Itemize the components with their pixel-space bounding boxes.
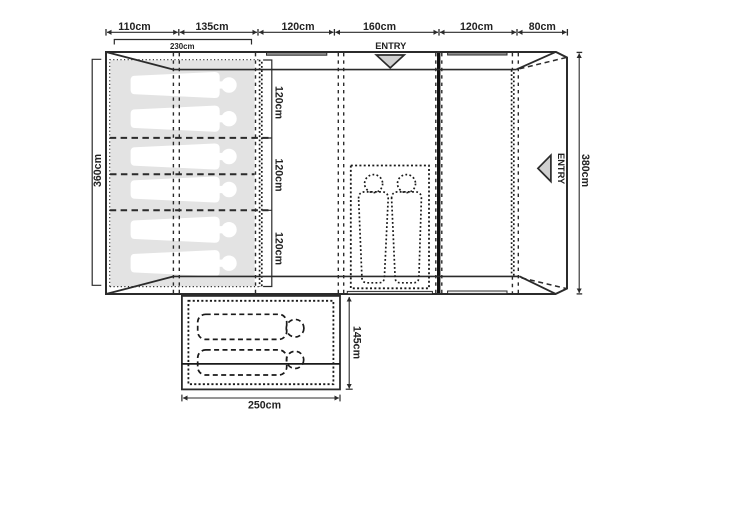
svg-text:145cm: 145cm: [350, 326, 362, 359]
svg-text:120cm: 120cm: [460, 21, 493, 33]
svg-text:120cm: 120cm: [272, 86, 284, 119]
svg-text:80cm: 80cm: [529, 21, 556, 33]
svg-text:ENTRY: ENTRY: [556, 153, 566, 185]
svg-text:230cm: 230cm: [170, 42, 195, 51]
svg-text:ENTRY: ENTRY: [375, 41, 407, 51]
svg-text:120cm: 120cm: [272, 159, 284, 192]
svg-text:360cm: 360cm: [92, 154, 104, 187]
svg-text:380cm: 380cm: [579, 154, 591, 187]
svg-text:160cm: 160cm: [363, 21, 396, 33]
svg-text:250cm: 250cm: [248, 399, 281, 411]
svg-text:120cm: 120cm: [272, 232, 284, 265]
svg-text:135cm: 135cm: [196, 21, 229, 33]
svg-text:110cm: 110cm: [118, 21, 150, 33]
svg-text:120cm: 120cm: [282, 21, 315, 33]
